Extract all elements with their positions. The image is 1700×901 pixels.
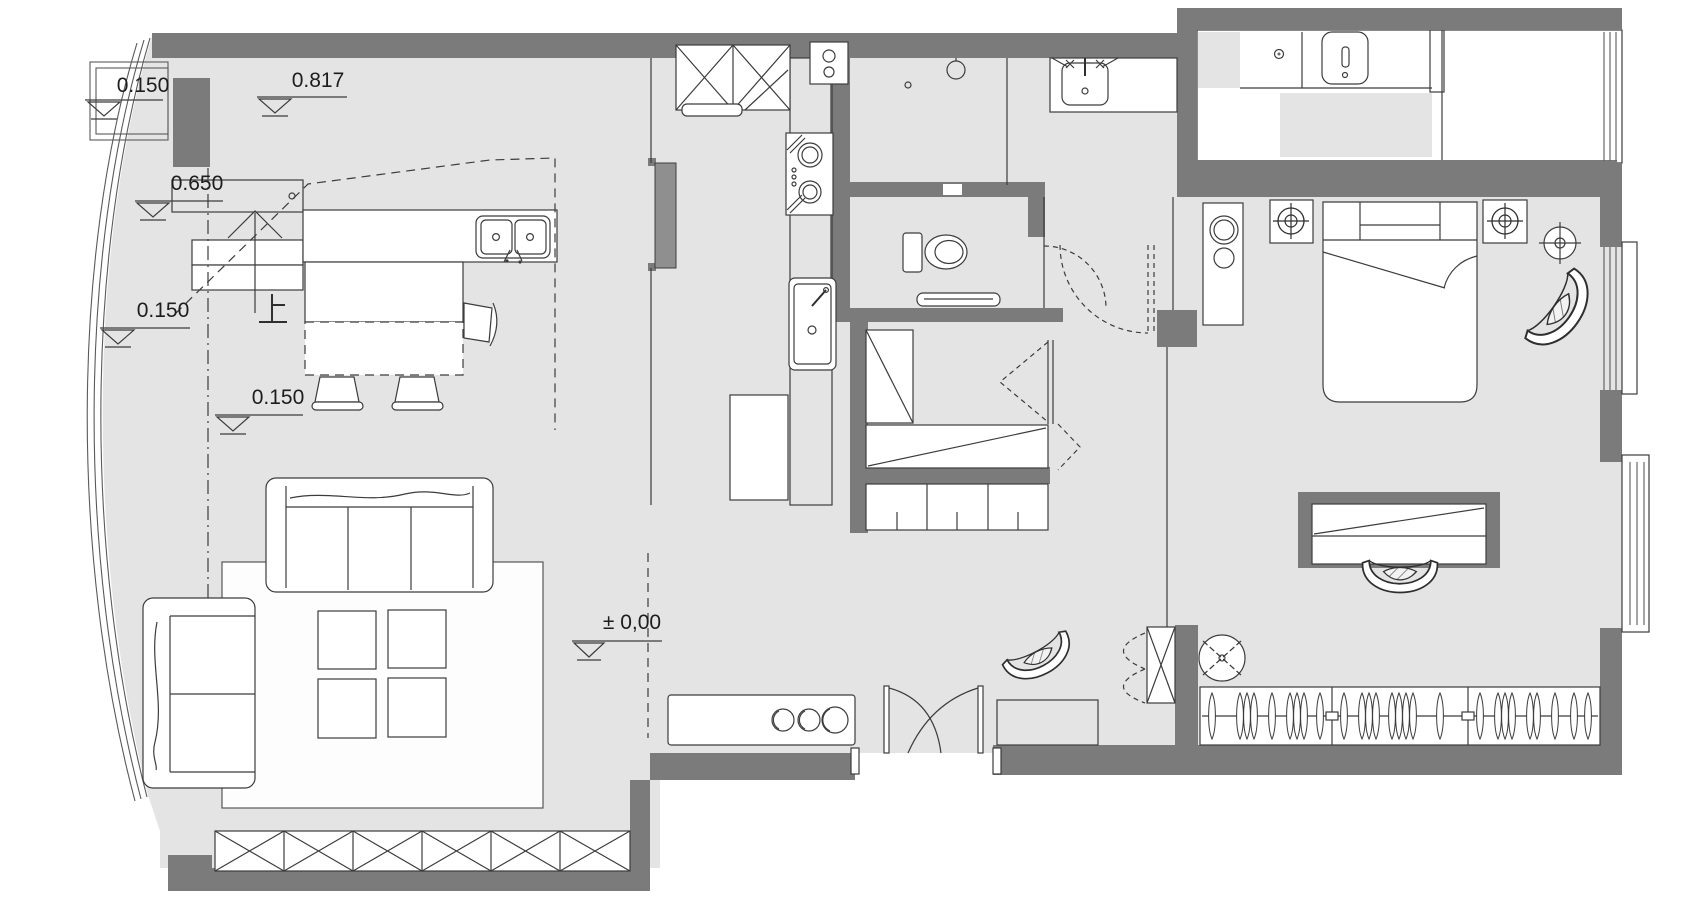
pocket-door-gap	[943, 184, 962, 195]
dining-chair	[312, 377, 363, 410]
wall-step-vertical	[630, 780, 650, 871]
utility-duct-bay	[1198, 32, 1240, 88]
wall-closet-mid	[850, 467, 1050, 484]
wall-oven-unit	[810, 42, 848, 84]
nightstand-left	[1270, 200, 1313, 243]
svg-text:0.150: 0.150	[117, 74, 170, 97]
ac-cabinet	[1203, 203, 1243, 325]
tv-console	[668, 695, 855, 745]
desk	[1312, 504, 1486, 564]
sliding-door-panel	[655, 163, 676, 268]
closet-cabinet	[866, 330, 913, 423]
svg-text:0.150: 0.150	[252, 386, 305, 409]
lower-cabinet-row	[866, 484, 1048, 530]
toilet-icon	[903, 233, 967, 272]
refrigerator-x-cabinet	[676, 45, 790, 116]
shoe-shelf	[866, 425, 1048, 468]
base-cabinet	[730, 395, 788, 500]
sofa-2-seat	[143, 598, 255, 788]
svg-text:0.650: 0.650	[171, 172, 224, 195]
wardrobe	[1200, 687, 1600, 745]
bed	[1323, 202, 1477, 402]
wall-top-east	[1177, 8, 1622, 30]
washbasin-vanity	[1050, 58, 1177, 112]
wall-bedroom-jog	[1157, 310, 1197, 347]
svg-text:0.150: 0.150	[137, 299, 190, 322]
washing-machine	[1322, 32, 1368, 84]
kitchen-island	[303, 210, 557, 264]
gas-stove-icon	[786, 133, 833, 215]
storage-x-cabinets	[215, 831, 630, 871]
utility-room	[1197, 30, 1622, 163]
stair-tread	[192, 265, 303, 290]
stair-tread	[192, 240, 303, 265]
floor-plan: 上	[0, 0, 1700, 901]
wall-bottom-east	[993, 745, 1622, 775]
wall-closet-west	[850, 322, 868, 533]
wall-bedroom-top	[1197, 160, 1617, 197]
wall-east-2	[1600, 390, 1622, 462]
coat-stand-icon	[1199, 635, 1245, 681]
wall-top-west	[152, 33, 657, 58]
towel-bar	[917, 293, 1000, 306]
wall-wc-south	[850, 308, 1063, 322]
rug	[222, 562, 543, 808]
dining-chair	[392, 377, 443, 410]
wall-wardrobe-west	[1175, 625, 1198, 748]
wall-bottom-hall	[650, 753, 855, 780]
nightstand-right	[1483, 200, 1527, 243]
svg-text:± 0,00: ± 0,00	[603, 611, 661, 634]
utility-walkway	[1280, 93, 1432, 157]
sofa-3-seat	[266, 478, 493, 592]
wall-bath-utility	[1177, 30, 1197, 197]
wall-east-3	[1600, 628, 1622, 748]
wall-east-1	[1600, 163, 1622, 247]
bay-window-lower	[1622, 455, 1649, 632]
wall-entry-pier	[173, 78, 210, 167]
kitchen-sink-icon	[789, 278, 836, 370]
wall-corner-sw	[168, 855, 212, 891]
svg-text:0.817: 0.817	[292, 69, 345, 92]
floor-plan-canvas: 上	[0, 0, 1700, 901]
